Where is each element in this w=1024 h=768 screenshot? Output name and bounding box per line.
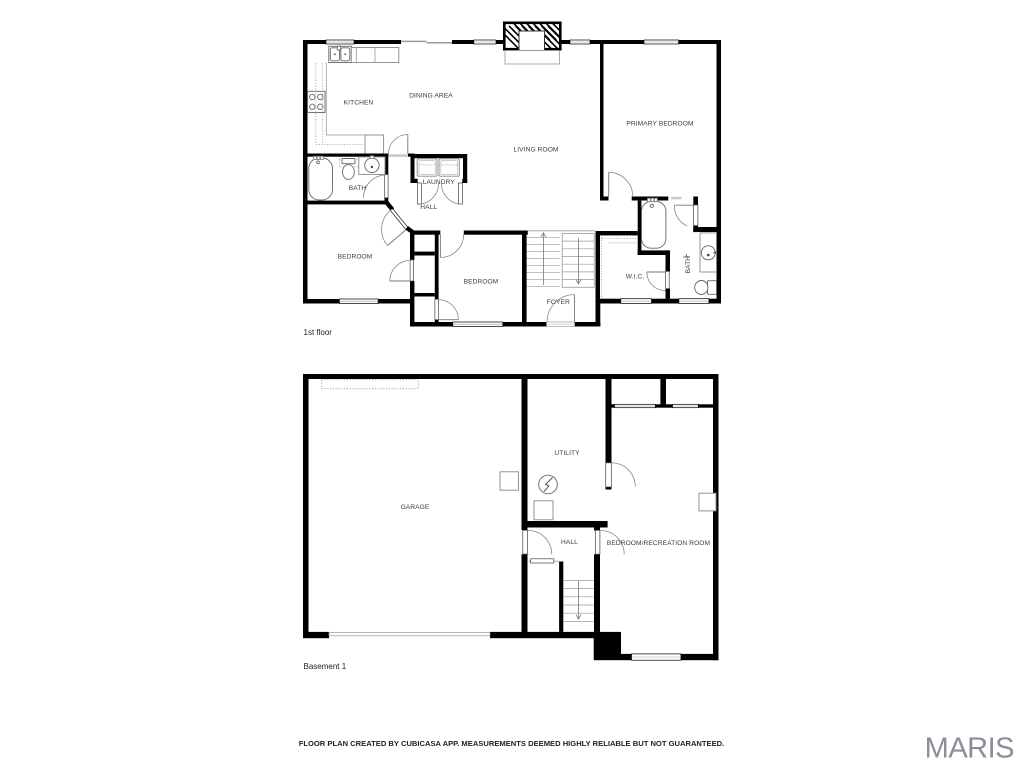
svg-text:LIVING ROOM: LIVING ROOM [513,146,558,153]
svg-text:LAUNDRY: LAUNDRY [423,179,456,186]
svg-text:FLOOR PLAN CREATED BY CUBICASA: FLOOR PLAN CREATED BY CUBICASA APP. MEAS… [299,739,725,748]
svg-text:MARIS: MARIS [925,733,1015,765]
svg-text:KITCHEN: KITCHEN [344,100,374,107]
svg-text:1st floor: 1st floor [304,328,333,337]
svg-text:BATH: BATH [685,256,692,274]
svg-text:W.I.C.: W.I.C. [626,273,645,280]
svg-text:HALL: HALL [420,204,437,211]
svg-text:FOYER: FOYER [547,299,570,306]
svg-text:BEDROOM: BEDROOM [338,253,373,260]
svg-text:HALL: HALL [561,539,578,546]
svg-text:PRIMARY BEDROOM: PRIMARY BEDROOM [626,120,693,127]
svg-text:Basement 1: Basement 1 [304,662,347,671]
svg-text:GARAGE: GARAGE [401,504,430,511]
svg-text:BEDROOM/RECREATION ROOM: BEDROOM/RECREATION ROOM [607,540,710,547]
svg-text:BATH: BATH [349,185,367,192]
svg-text:DINING AREA: DINING AREA [409,92,453,99]
svg-text:UTILITY: UTILITY [554,450,580,457]
svg-text:BEDROOM: BEDROOM [464,278,499,285]
